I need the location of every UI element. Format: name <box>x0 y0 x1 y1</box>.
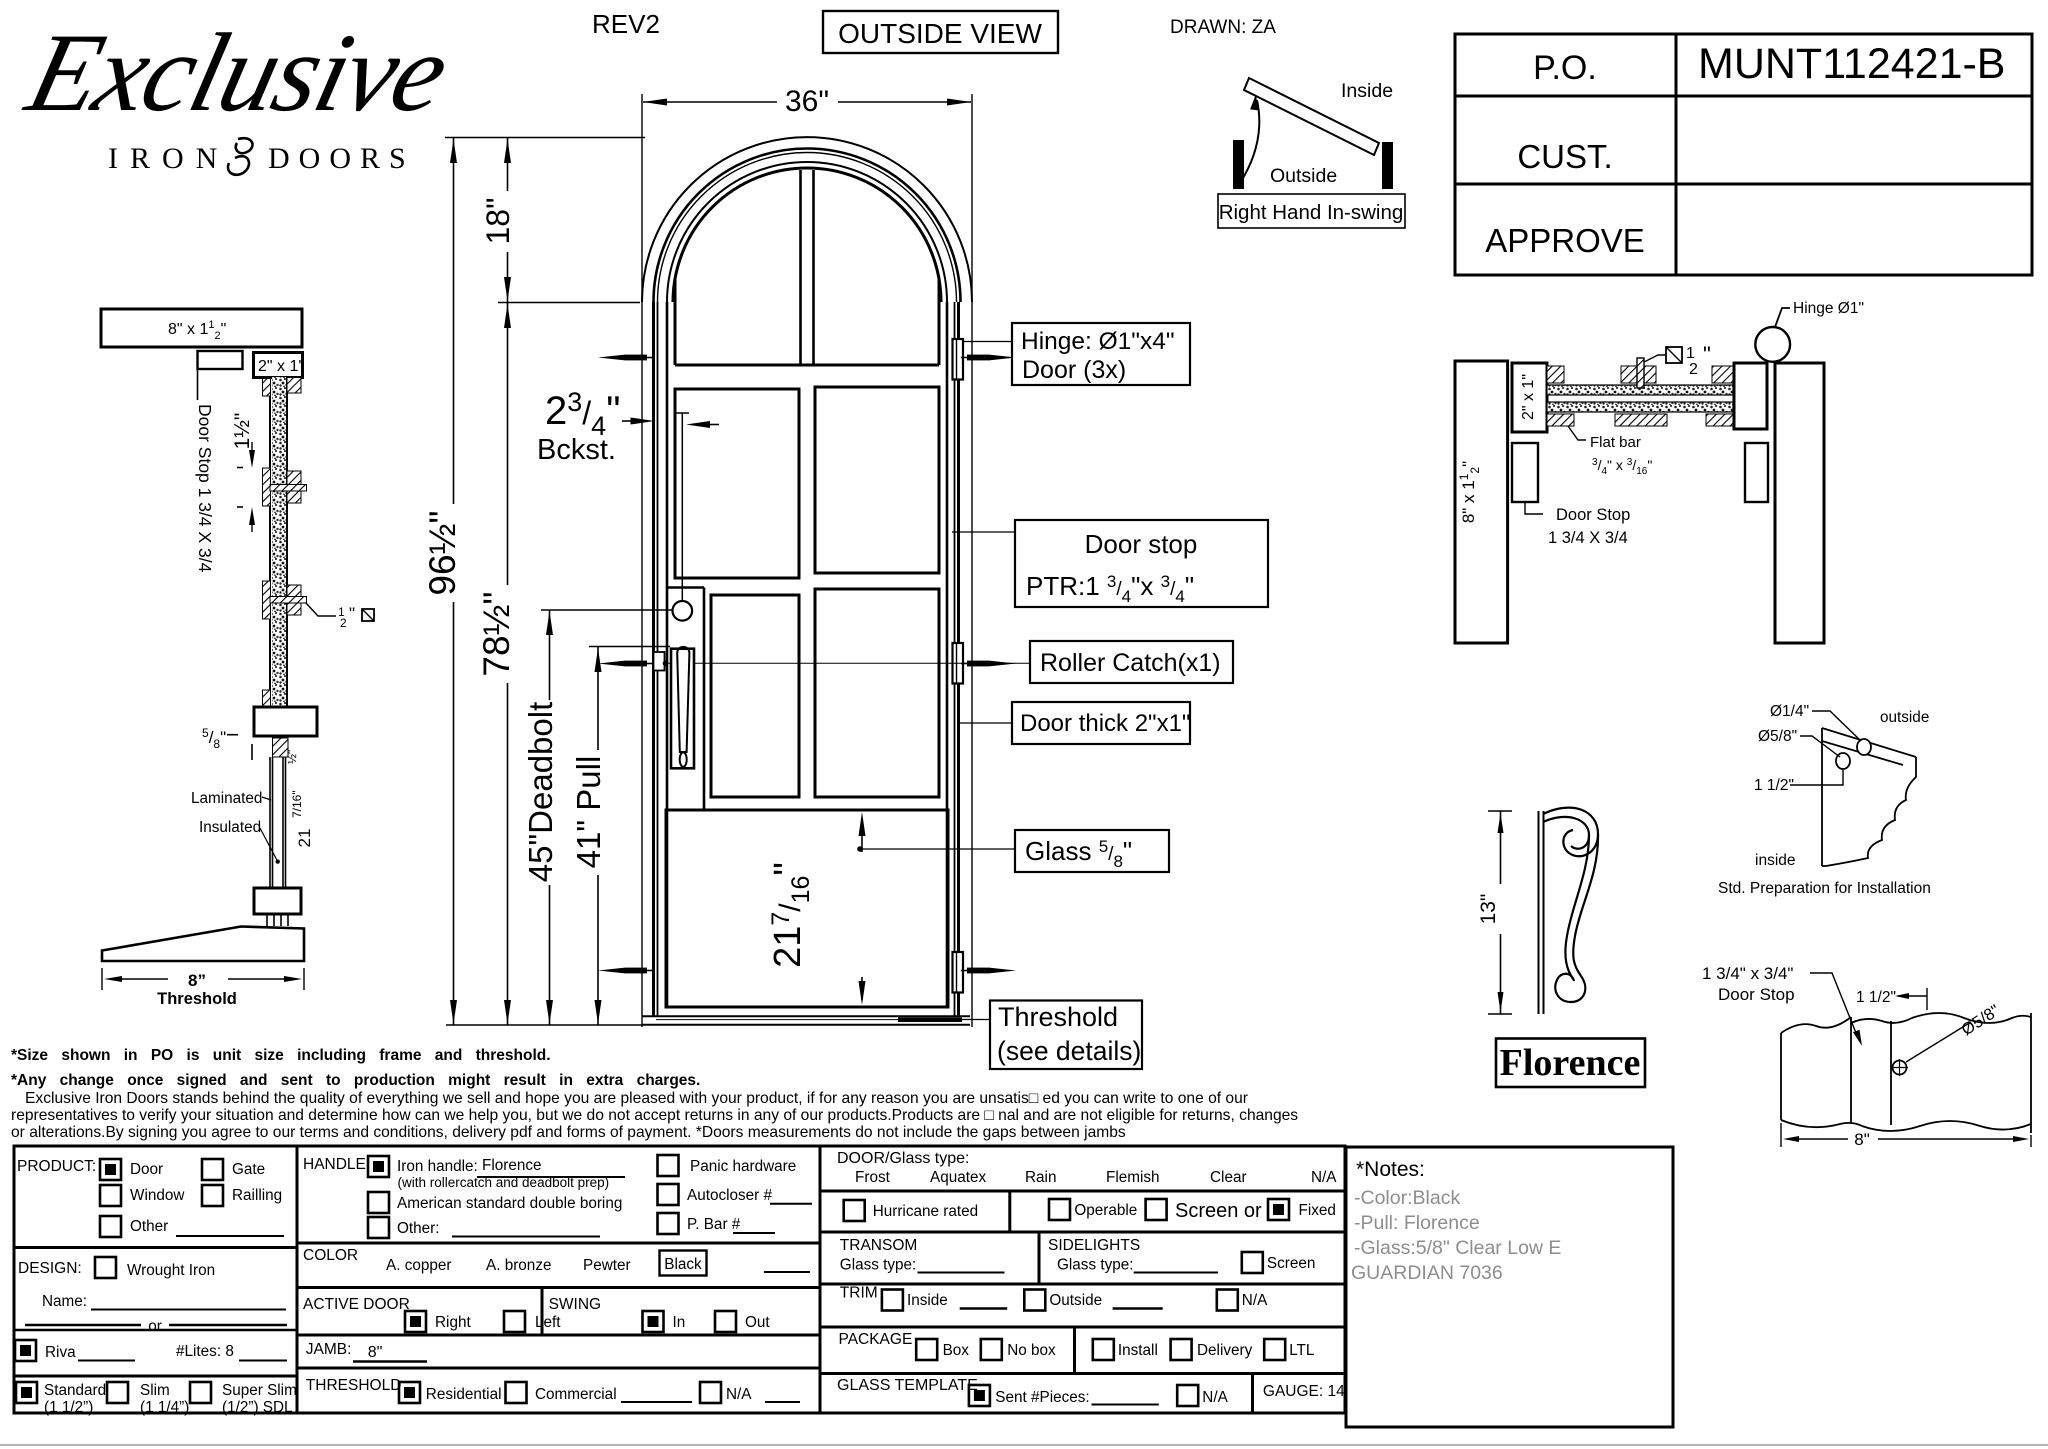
svg-text:36": 36" <box>785 85 829 118</box>
svg-text:Roller Catch(x1): Roller Catch(x1) <box>1040 649 1221 677</box>
svg-text:Autocloser #: Autocloser # <box>687 1187 773 1204</box>
svg-text:SIDELIGHTS: SIDELIGHTS <box>1048 1237 1140 1254</box>
svg-text:CUST.: CUST. <box>1517 138 1612 175</box>
svg-text:IRON: IRON <box>108 142 229 175</box>
svg-text:1½": 1½" <box>231 413 254 450</box>
svg-text:Door (3x): Door (3x) <box>1022 356 1126 384</box>
svg-text:HANDLE: HANDLE <box>303 1156 366 1173</box>
svg-text:Insulated: Insulated <box>199 819 261 836</box>
svg-text:outside: outside <box>1880 709 1929 726</box>
svg-text:N/A: N/A <box>726 1386 752 1403</box>
svg-text:Laminated: Laminated <box>191 790 262 807</box>
svg-text:2" x 1": 2" x 1" <box>1520 374 1537 420</box>
svg-text:21: 21 <box>295 829 314 848</box>
svg-text:Outside: Outside <box>1049 1292 1102 1309</box>
svg-text:In: In <box>673 1314 686 1331</box>
svg-text:Left: Left <box>535 1314 561 1331</box>
svg-text:Florence: Florence <box>1500 1042 1641 1084</box>
svg-text:GLASS TEMPLATE: GLASS TEMPLATE <box>837 1377 978 1394</box>
svg-text:*Size shown in PO is unit size: *Size shown in PO is unit size including… <box>11 1047 551 1064</box>
svg-text:Screen: Screen <box>1267 1255 1315 1272</box>
svg-text:ACTIVE DOOR: ACTIVE DOOR <box>303 1296 410 1313</box>
svg-text:PACKAGE: PACKAGE <box>839 1331 913 1348</box>
svg-text:Riva: Riva <box>45 1344 76 1361</box>
svg-text:Florence: Florence <box>482 1157 542 1174</box>
svg-text:APPROVE: APPROVE <box>1485 222 1645 259</box>
svg-text:LTL: LTL <box>1289 1342 1314 1359</box>
svg-text:JAMB:: JAMB: <box>306 1341 352 1358</box>
svg-text:Outside: Outside <box>1270 165 1337 187</box>
svg-text:#Lites: 8: #Lites: 8 <box>176 1343 234 1360</box>
svg-text:Railling: Railling <box>232 1187 282 1204</box>
svg-text:PRODUCT:: PRODUCT: <box>17 1158 96 1175</box>
svg-text:(see details): (see details) <box>997 1036 1141 1066</box>
svg-text:No box: No box <box>1007 1342 1056 1359</box>
svg-text:Fixed: Fixed <box>1299 1202 1336 1219</box>
svg-text:*Any change once signed and se: *Any change once signed and sent to prod… <box>11 1072 700 1089</box>
svg-text:Box: Box <box>943 1342 970 1359</box>
svg-text:1 1/2": 1 1/2" <box>1856 989 1896 1006</box>
svg-text:8”: 8” <box>188 971 206 990</box>
svg-text:Door Stop: Door Stop <box>1718 985 1795 1004</box>
svg-text:N/A: N/A <box>1242 1292 1268 1309</box>
svg-text:Threshold: Threshold <box>998 1002 1118 1032</box>
svg-text:1 3/4 X 3/4: 1 3/4 X 3/4 <box>1548 529 1628 547</box>
svg-text:-Pull: Florence: -Pull: Florence <box>1354 1212 1480 1234</box>
svg-text:Bckst.: Bckst. <box>537 434 616 466</box>
svg-text:Right Hand In-swing: Right Hand In-swing <box>1219 201 1404 224</box>
svg-text:Hinge: Ø1"x4": Hinge: Ø1"x4" <box>1021 328 1175 355</box>
svg-text:96½": 96½" <box>422 510 463 595</box>
svg-text:Install: Install <box>1118 1342 1158 1359</box>
svg-text:Residential: Residential <box>426 1386 502 1403</box>
svg-text:Wrought Iron: Wrought Iron <box>127 1262 215 1279</box>
svg-text:Right: Right <box>435 1314 471 1331</box>
svg-text:Iron handle:: Iron handle: <box>397 1158 478 1175</box>
svg-text:7/16": 7/16" <box>290 790 304 818</box>
svg-text:Slim: Slim <box>140 1382 170 1399</box>
svg-text:American standard double borin: American standard double boring <box>397 1195 622 1212</box>
svg-text:Flat bar: Flat bar <box>1590 434 1641 451</box>
svg-text:DESIGN:: DESIGN: <box>18 1260 82 1277</box>
svg-text:A. copper: A. copper <box>386 1257 451 1274</box>
svg-text:Window: Window <box>130 1187 185 1204</box>
svg-text:N/A: N/A <box>1202 1389 1228 1406</box>
svg-text:Door thick 2"x1": Door thick 2"x1" <box>1020 710 1190 737</box>
svg-text:Black: Black <box>664 1256 702 1273</box>
svg-text:Std. Preparation for Installat: Std. Preparation for Installation <box>1718 880 1931 897</box>
svg-text:45"Deadbolt: 45"Deadbolt <box>522 702 559 883</box>
svg-text:or alterations.By signing you: or alterations.By signing you agree to o… <box>11 1124 1126 1141</box>
svg-text:Ø5/8": Ø5/8" <box>1758 728 1797 745</box>
svg-text:Standard: Standard <box>44 1382 106 1399</box>
svg-text:13": 13" <box>1477 894 1500 925</box>
svg-text:Panic hardware: Panic hardware <box>690 1158 796 1175</box>
svg-text:TRANSOM: TRANSOM <box>840 1237 918 1254</box>
svg-text:41" Pull: 41" Pull <box>570 756 607 869</box>
svg-text:Glass type:: Glass type: <box>840 1257 917 1274</box>
svg-text:Name:: Name: <box>42 1293 87 1310</box>
svg-text:-Color:Black: -Color:Black <box>1354 1187 1460 1209</box>
svg-text:(1 1/2”): (1 1/2”) <box>44 1399 93 1416</box>
svg-text:Flemish: Flemish <box>1106 1169 1160 1186</box>
svg-text:Door Stop: Door Stop <box>1556 506 1630 524</box>
svg-text:Glass type:: Glass type: <box>1057 1257 1134 1274</box>
svg-text:18": 18" <box>480 198 516 245</box>
svg-text:P. Bar #: P. Bar # <box>687 1216 741 1233</box>
svg-text:Clear: Clear <box>1210 1169 1247 1186</box>
svg-text:Aquatex: Aquatex <box>930 1169 986 1186</box>
svg-text:P.O.: P.O. <box>1533 49 1597 87</box>
svg-text:78½": 78½" <box>476 591 517 676</box>
svg-text:Exclusive Iron Doors stands be: Exclusive Iron Doors stands behind the q… <box>25 1090 1248 1107</box>
svg-text:OUTSIDE VIEW: OUTSIDE VIEW <box>838 18 1042 49</box>
svg-text:GAUGE: 14: GAUGE: 14 <box>1263 1383 1345 1400</box>
svg-text:DOOR/Glass type:: DOOR/Glass type: <box>837 1150 969 1167</box>
svg-text:Super Slim: Super Slim <box>222 1382 297 1399</box>
svg-text:Inside: Inside <box>907 1292 948 1309</box>
svg-text:THRESHOLD: THRESHOLD <box>306 1377 402 1394</box>
svg-text:*Notes:: *Notes: <box>1356 1158 1425 1181</box>
svg-text:Hinge Ø1": Hinge Ø1" <box>1793 300 1864 317</box>
svg-text:Rain: Rain <box>1025 1169 1056 1186</box>
svg-text:DOORS: DOORS <box>268 142 415 175</box>
svg-text:Hurricane rated: Hurricane rated <box>873 1203 978 1220</box>
svg-text:(1/2”) SDL: (1/2”) SDL <box>222 1399 293 1416</box>
svg-text:-Glass:5/8" Clear Low E: -Glass:5/8" Clear Low E <box>1354 1237 1561 1259</box>
svg-text:Ø1/4": Ø1/4" <box>1770 703 1809 720</box>
svg-text:Gate: Gate <box>232 1161 265 1178</box>
svg-text:Threshold: Threshold <box>157 990 237 1008</box>
svg-text:Operable: Operable <box>1074 1202 1137 1219</box>
svg-text:representatives to verify your: representatives to verify your situation… <box>11 1107 1298 1124</box>
svg-text:COLOR: COLOR <box>303 1247 358 1264</box>
svg-text:Screen or: Screen or <box>1175 1200 1262 1222</box>
svg-text:1 3/4" x 3/4": 1 3/4" x 3/4" <box>1702 964 1793 983</box>
svg-text:2" x 1': 2" x 1' <box>258 358 301 375</box>
svg-text:Door Stop 1 3/4 X 3/4: Door Stop 1 3/4 X 3/4 <box>195 404 215 573</box>
svg-text:TRIM: TRIM <box>840 1285 878 1302</box>
svg-text:GUARDIAN 7036: GUARDIAN 7036 <box>1351 1262 1503 1284</box>
svg-text:or: or <box>148 1318 162 1335</box>
svg-text:Sent #Pieces:: Sent #Pieces: <box>995 1389 1089 1406</box>
svg-text:MUNT112421-B: MUNT112421-B <box>1698 40 2006 88</box>
svg-text:DRAWN: ZA: DRAWN: ZA <box>1170 17 1276 38</box>
svg-text:inside: inside <box>1755 852 1796 869</box>
svg-text:REV2: REV2 <box>592 9 660 39</box>
svg-text:8": 8" <box>368 1344 383 1361</box>
svg-text:Inside: Inside <box>1341 80 1393 102</box>
svg-text:½": ½" <box>285 750 299 764</box>
svg-text:1 1/2": 1 1/2" <box>1754 777 1794 794</box>
svg-text:(1 1/4”): (1 1/4”) <box>140 1399 189 1416</box>
svg-text:Exclusive: Exclusive <box>14 11 458 135</box>
svg-text:Pewter: Pewter <box>583 1257 631 1274</box>
svg-text:Commercial: Commercial <box>535 1386 617 1403</box>
svg-text:Door stop: Door stop <box>1085 529 1198 559</box>
svg-text:Delivery: Delivery <box>1197 1342 1253 1359</box>
svg-text:N/A: N/A <box>1311 1169 1337 1186</box>
svg-text:Frost: Frost <box>855 1169 891 1186</box>
svg-text:SWING: SWING <box>549 1296 602 1313</box>
svg-text:Other: Other <box>130 1218 168 1235</box>
svg-text:A. bronze: A. bronze <box>486 1257 551 1274</box>
svg-text:(with rollercatch and deadbolt: (with rollercatch and deadbolt prep) <box>398 1175 610 1190</box>
svg-text:Door: Door <box>130 1161 163 1178</box>
svg-text:Other:: Other: <box>397 1220 440 1237</box>
svg-text:Out: Out <box>745 1314 770 1331</box>
svg-text:8": 8" <box>1854 1130 1870 1149</box>
